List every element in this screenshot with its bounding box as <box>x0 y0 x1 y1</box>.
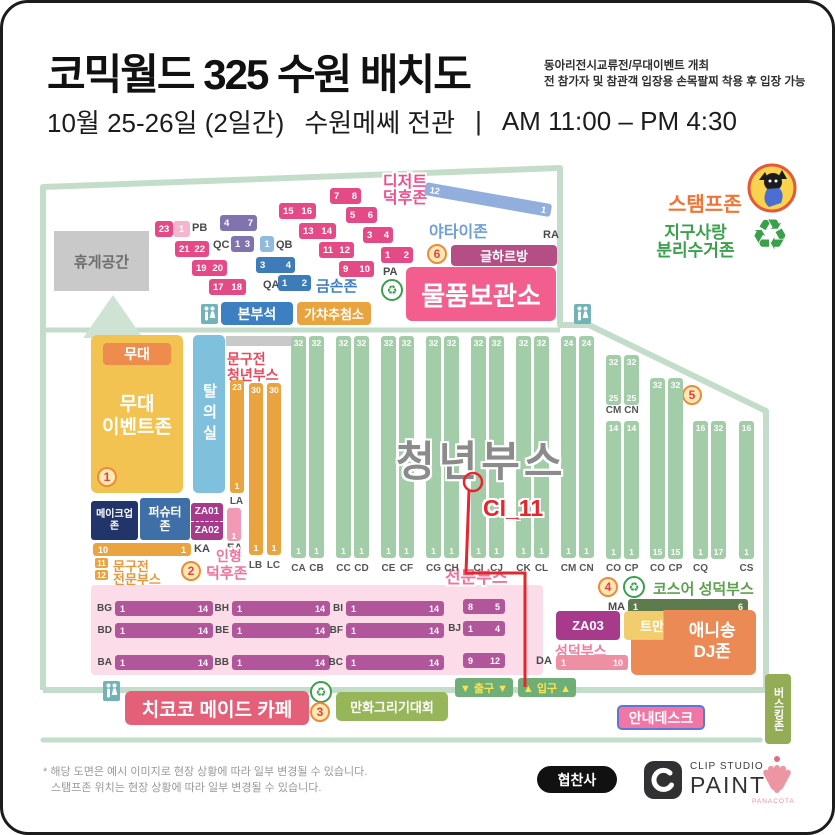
marker-booth-id: CI_11 <box>483 495 543 522</box>
venue-map-poster: 코믹월드 325 수원 배치도 동아리전시교류전/무대이벤트 개최 전 참가자 … <box>0 0 835 835</box>
marker-path <box>3 3 835 835</box>
